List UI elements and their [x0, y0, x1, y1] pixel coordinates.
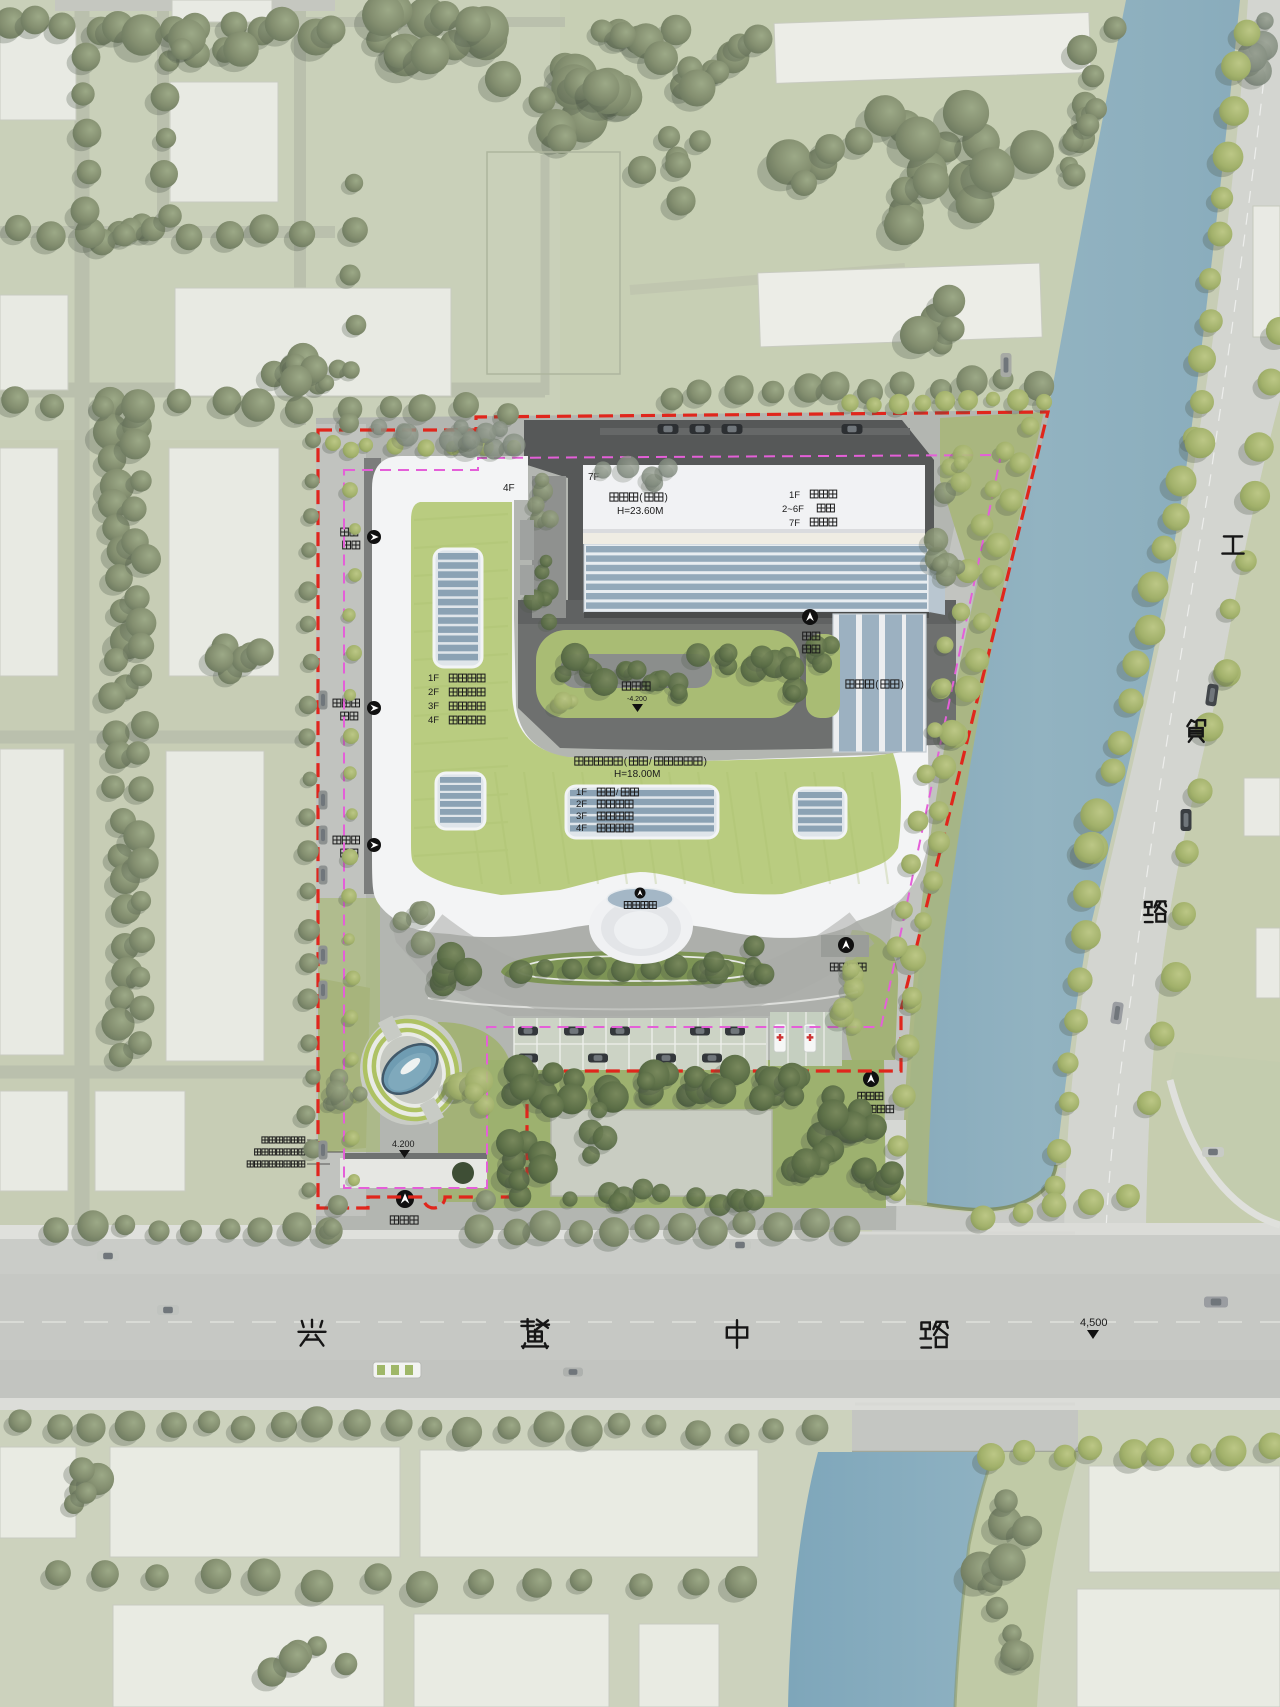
- svg-text:2F: 2F: [576, 799, 587, 810]
- svg-text:-4.200: -4.200: [627, 696, 647, 703]
- svg-text:3F: 3F: [428, 701, 439, 712]
- svg-text:4F: 4F: [428, 715, 439, 726]
- svg-text:1F: 1F: [576, 787, 587, 798]
- svg-text:): ): [665, 492, 668, 503]
- svg-text:H=23.60M: H=23.60M: [617, 506, 663, 517]
- svg-text:3F: 3F: [576, 811, 587, 822]
- svg-text:/: /: [649, 756, 652, 767]
- svg-text:): ): [704, 756, 707, 767]
- svg-text:): ): [901, 679, 904, 690]
- svg-text:1F: 1F: [789, 490, 800, 501]
- svg-text:4,500: 4,500: [1080, 1317, 1108, 1329]
- svg-text:7F: 7F: [789, 518, 800, 529]
- svg-text:4F: 4F: [503, 483, 515, 494]
- svg-text:H=18.00M: H=18.00M: [614, 769, 660, 780]
- svg-text:1F: 1F: [428, 673, 439, 684]
- svg-text:4F: 4F: [576, 823, 587, 834]
- svg-text:/: /: [616, 787, 619, 798]
- svg-text:4.200: 4.200: [392, 1139, 415, 1149]
- svg-text:2F: 2F: [428, 687, 439, 698]
- svg-text:2~6F: 2~6F: [782, 504, 804, 515]
